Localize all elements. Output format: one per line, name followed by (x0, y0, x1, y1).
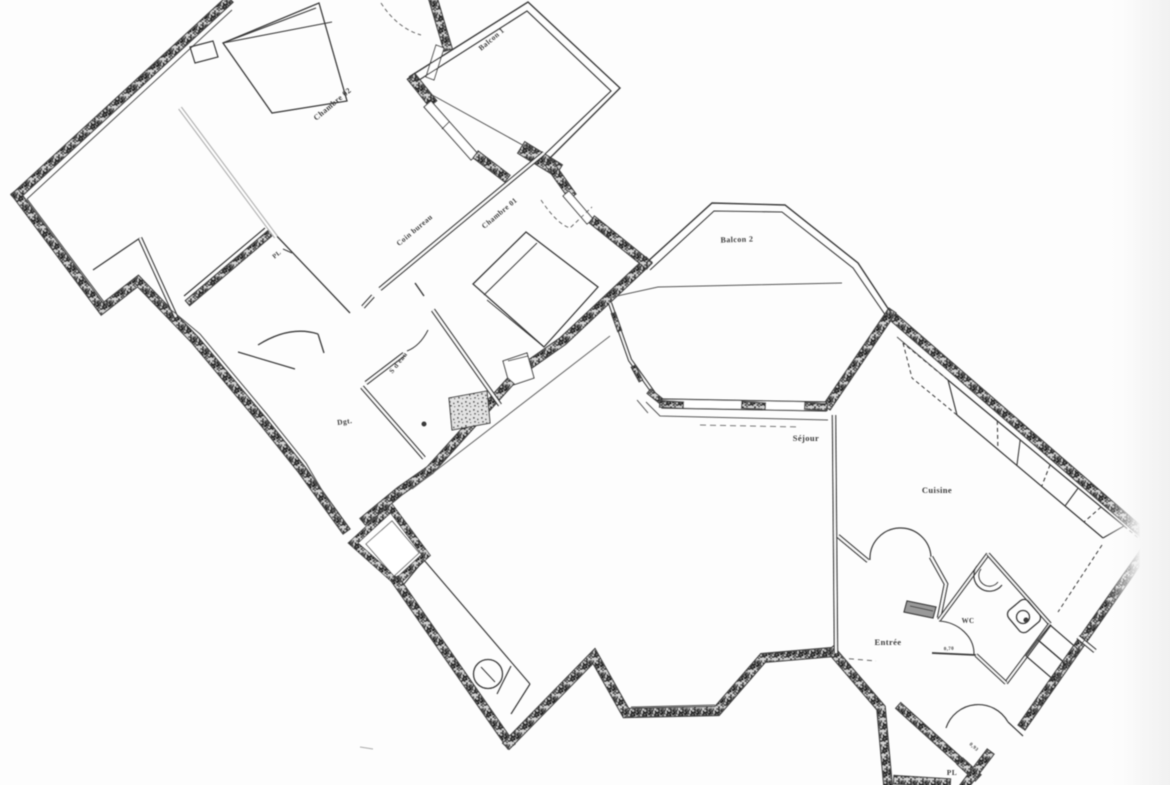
svg-text:Entrée: Entrée (875, 637, 902, 647)
svg-text:0,70: 0,70 (944, 647, 955, 653)
svg-text:Dgt.: Dgt. (337, 416, 353, 427)
svg-text:Chambre 02: Chambre 02 (312, 86, 353, 123)
svg-text:Coin bureau: Coin bureau (394, 212, 434, 247)
svg-text:WC: WC (962, 617, 975, 625)
svg-text:Balcon 1: Balcon 1 (477, 26, 506, 53)
svg-text:Séjour: Séjour (793, 433, 819, 443)
svg-text:PL: PL (947, 768, 957, 777)
svg-text:Balcon 2: Balcon 2 (720, 234, 753, 244)
svg-text:Cuisine: Cuisine (922, 485, 952, 495)
svg-text:0,93: 0,93 (968, 742, 979, 753)
svg-text:PL: PL (271, 249, 283, 260)
